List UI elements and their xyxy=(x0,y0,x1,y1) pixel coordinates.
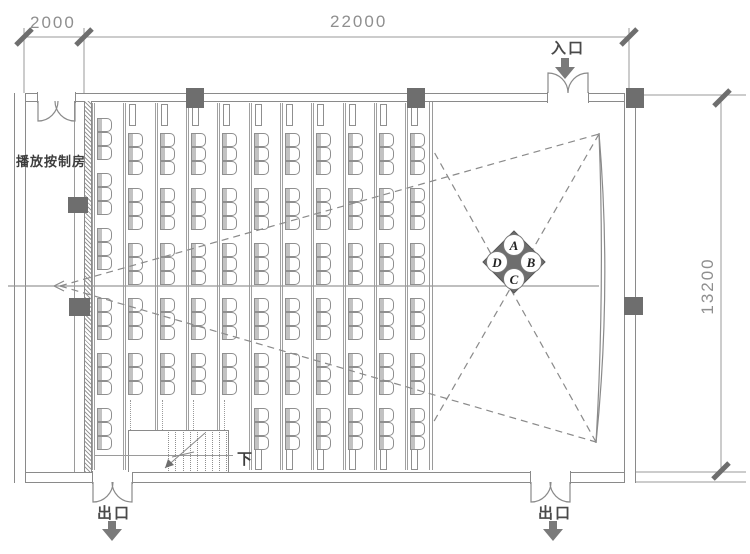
dimension-ticks xyxy=(16,29,730,479)
zone-letter-c: C xyxy=(510,272,519,287)
column-top-2 xyxy=(407,88,425,108)
floor-plan: A B C D 2000 22000 13200 入口 出口 出口 播放按制房 … xyxy=(0,0,750,554)
dim-hall-width: 22000 xyxy=(330,12,387,32)
exit-right-door-swing xyxy=(531,482,570,502)
exit-left-arrow-icon xyxy=(102,521,122,541)
exit-right-label: 出口 xyxy=(538,502,572,523)
control-room-door-swing xyxy=(38,101,75,121)
column-top-right-corner xyxy=(626,88,644,108)
pilaster-left-2 xyxy=(69,298,90,316)
entrance-label: 入口 xyxy=(551,37,585,58)
column-top-1 xyxy=(186,88,204,108)
control-room-label: 播放按制房 xyxy=(16,151,86,170)
zone-letter-d: D xyxy=(491,255,502,270)
zone-marker: A B C D xyxy=(483,231,545,293)
zone-letter-b: B xyxy=(526,255,536,270)
exit-left-label: 出口 xyxy=(97,502,131,523)
screen xyxy=(596,133,605,443)
linework-overlay: A B C D xyxy=(0,0,750,554)
dim-hall-depth: 13200 xyxy=(698,256,718,316)
entrance-door-swing xyxy=(548,73,588,93)
exit-left-door-swing xyxy=(93,482,132,502)
dim-control-room-width: 2000 xyxy=(30,13,76,33)
stair-break-line xyxy=(165,433,205,468)
exit-right-arrow-icon xyxy=(543,521,563,541)
pilaster-right-mid xyxy=(624,297,643,315)
stair-down-label: 下 xyxy=(237,448,252,469)
zone-letter-a: A xyxy=(509,238,519,253)
pilaster-left-1 xyxy=(68,197,88,213)
